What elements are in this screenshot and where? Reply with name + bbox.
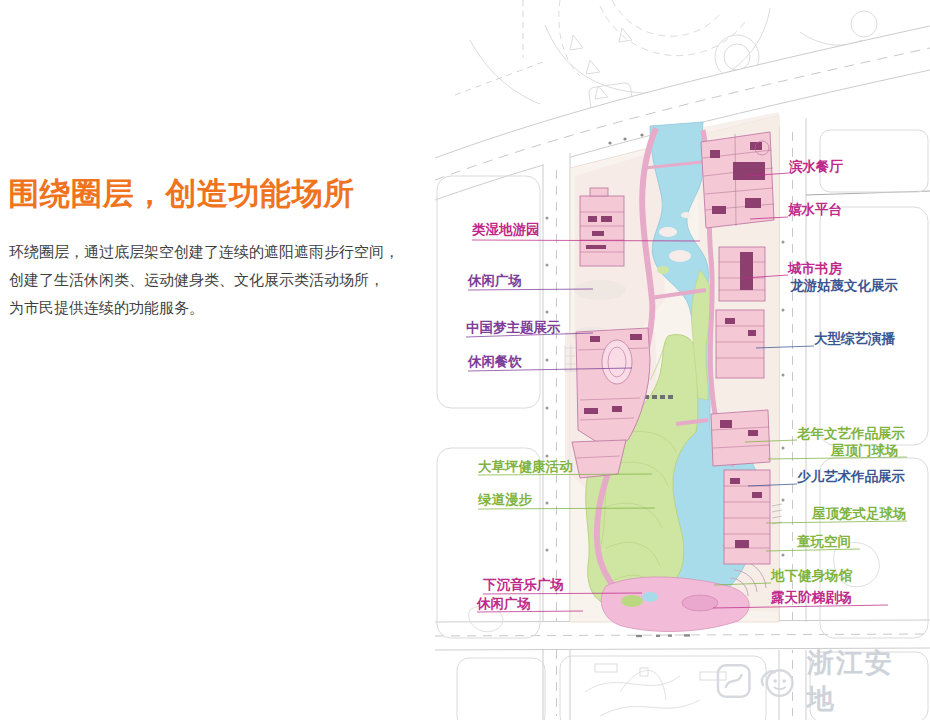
map-label-rooftop-cage-football: 屋顶笼式足球场 [812, 505, 907, 523]
map-label-children-art-exhibit: 少儿艺术作品展示 [797, 468, 905, 486]
left-panel: 围绕圈层，创造功能场所 环绕圈层，通过底层架空创建了连续的遮阳遮雨步行空间， 创… [0, 0, 435, 720]
company-logo-text: 浙江安地 [807, 645, 921, 717]
map-label-leisure-plaza-south: 休闲广场 [477, 595, 531, 613]
map-label-variety-show-studio: 大型综艺演播 [814, 330, 895, 348]
body-line-3: 为市民提供连续的功能服务。 [9, 294, 409, 322]
body-line-2: 创建了生活休闲类、运动健身类、文化展示类活动场所， [9, 266, 409, 294]
map-label-senior-art-exhibit: 老年文艺作品展示 [797, 425, 905, 443]
map-label-longyou-gumie-culture-exhibit: 龙游姑蔑文化展示 [790, 277, 898, 295]
slide: { "slide": { "title": "围绕圈层，创造功能场所", "bo… [0, 0, 930, 720]
map-label-wetland-park: 类湿地游园 [472, 221, 540, 239]
body-line-1: 环绕圈层，通过底层架空创建了连续的遮阳遮雨步行空间， [9, 238, 409, 266]
smiley-logo-icon [759, 661, 798, 701]
map-label-underground-gym: 地下健身场馆 [771, 567, 852, 585]
page-title: 围绕圈层，创造功能场所 [8, 176, 428, 212]
company-logo: 浙江安地 [716, 653, 921, 708]
map-label-children-play-space: 童玩空间 [797, 533, 851, 551]
map-label-sunken-music-plaza: 下沉音乐广场 [483, 576, 564, 594]
body-text: 环绕圈层，通过底层架空创建了连续的遮阳遮雨步行空间， 创建了生活休闲类、运动健身… [9, 238, 409, 322]
map-label-city-study: 城市书房 [788, 260, 842, 278]
map-label-rooftop-gateball-court: 屋顶门球场 [831, 442, 899, 460]
map-label-china-dream-exhibit: 中国梦主题展示 [466, 319, 561, 337]
map-label-open-air-amphitheater: 露天阶梯剧场 [771, 589, 852, 607]
map-label-greenway-stroll: 绿道漫步 [478, 491, 532, 509]
map-label-waterfront-restaurant: 滨水餐厅 [789, 158, 843, 176]
rounded-square-logo-icon [716, 661, 751, 701]
map-label-water-play-platform: 嬉水平台 [788, 201, 842, 219]
map-label-lawn-health-activity: 大草坪健康活动 [478, 458, 573, 476]
map-label-leisure-dining: 休闲餐饮 [468, 353, 522, 371]
map-label-leisure-plaza-west: 休闲广场 [468, 272, 522, 290]
